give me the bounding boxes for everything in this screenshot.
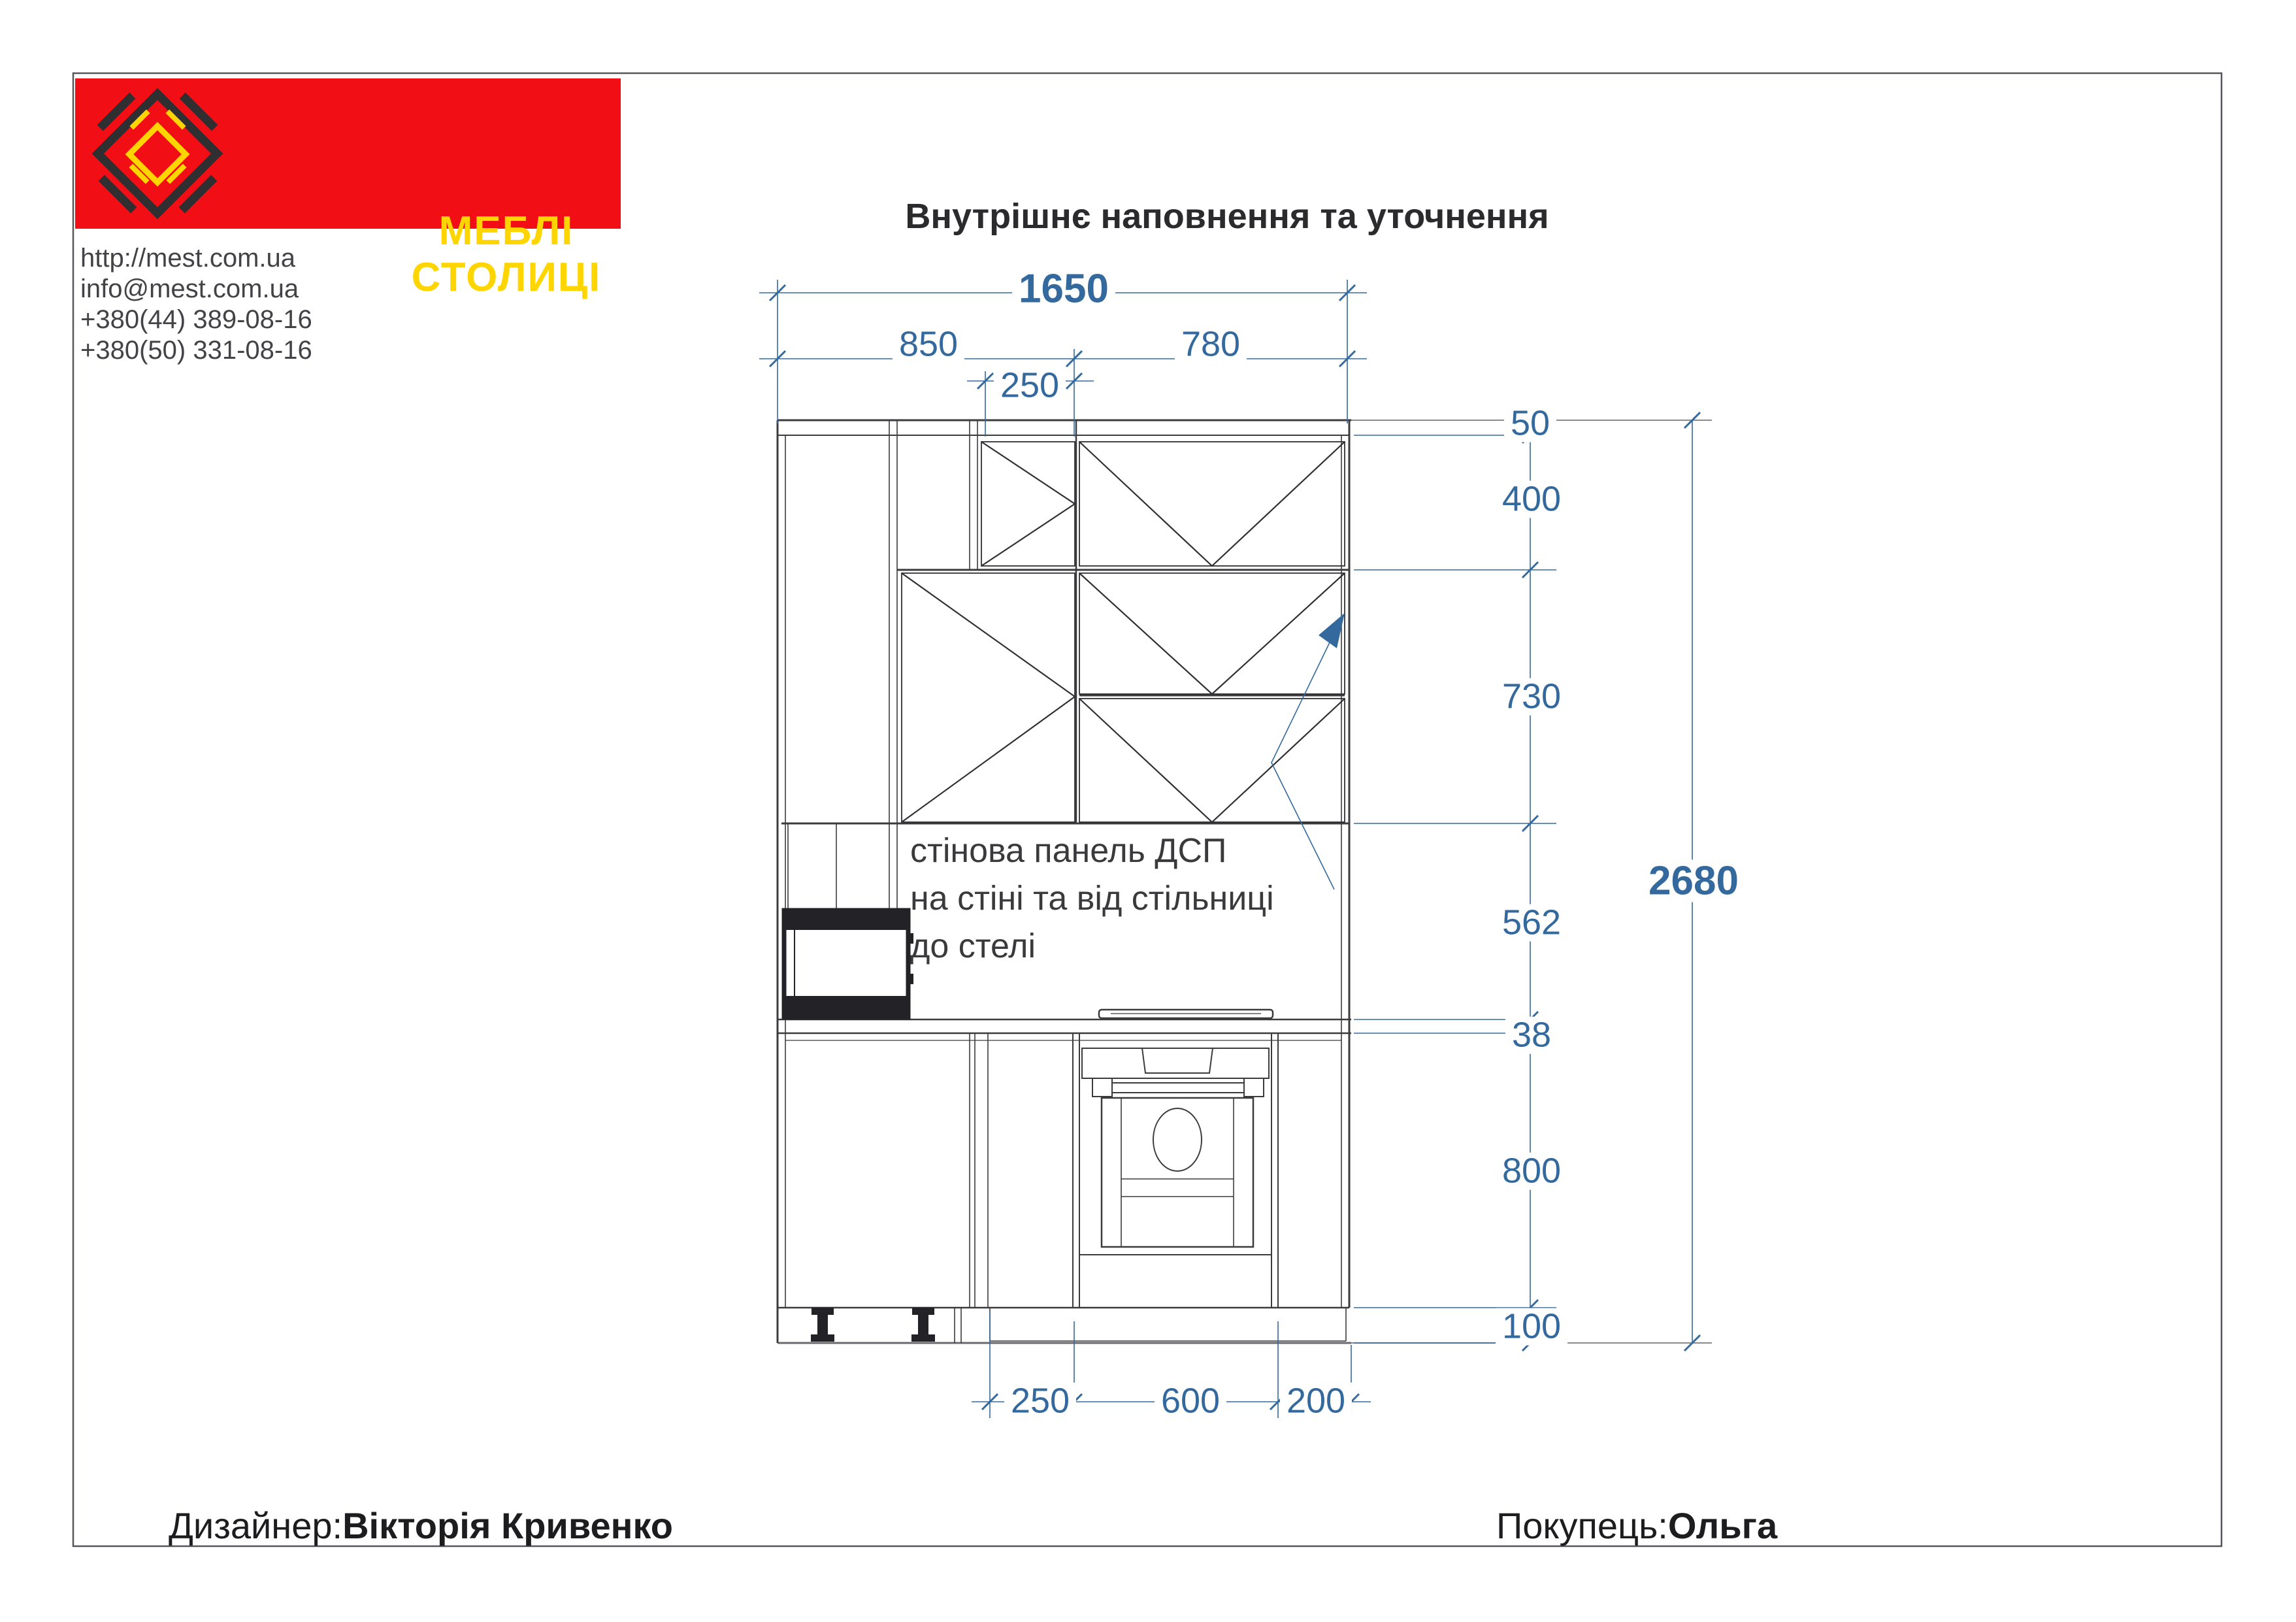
dim-top-filler: 50 — [1504, 405, 1556, 442]
door-fronts — [902, 442, 1345, 822]
designer-name: Вікторія Кривенко — [342, 1505, 673, 1546]
oven — [1079, 1048, 1271, 1255]
microwave — [784, 910, 913, 1018]
annotation-line-1: стінова панель ДСП — [910, 827, 1274, 875]
dim-left-width: 850 — [893, 326, 964, 363]
dim-countertop: 38 — [1505, 1017, 1558, 1054]
annotation-leader-line — [1271, 620, 1341, 889]
page-title: Внутрішнє наповнення та уточнення — [868, 196, 1586, 237]
dim-bottom-oven: 600 — [1155, 1383, 1226, 1420]
contact-block: http://mest.com.ua info@mest.com.ua +380… — [80, 243, 312, 366]
dim-bottom-end: 200 — [1280, 1383, 1352, 1420]
drawing-sheet: МЕБЛІ СТОЛИЦІ http://mest.com.ua info@me… — [0, 0, 2296, 1622]
cabinet-legs — [811, 1308, 935, 1342]
customer-field: Покупець:Ольга — [1496, 1504, 1777, 1547]
wall-panel-annotation: стінова панель ДСП на стіні та від стіль… — [910, 827, 1274, 970]
dim-base-height: 800 — [1496, 1153, 1567, 1190]
leader-arrow-icon — [1319, 613, 1345, 648]
cooktop — [1099, 1010, 1273, 1018]
dim-right-width: 780 — [1175, 326, 1247, 363]
website-link[interactable]: http://mest.com.ua — [80, 243, 312, 274]
cabinet-drawing — [0, 0, 2296, 1622]
phone-number-2: +380(50) 331-08-16 — [80, 335, 312, 366]
phone-number-1: +380(44) 389-08-16 — [80, 305, 312, 335]
dim-plinth: 100 — [1496, 1308, 1567, 1346]
annotation-line-2: на стіні та від стільниці — [910, 875, 1274, 923]
customer-name: Ольга — [1668, 1505, 1777, 1546]
designer-field: Дизайнер:Вікторія Кривенко — [169, 1504, 673, 1547]
customer-label: Покупець: — [1496, 1505, 1668, 1546]
dim-total-width: 1650 — [1012, 267, 1115, 310]
email-link[interactable]: info@mest.com.ua — [80, 274, 312, 305]
dim-lower-row: 730 — [1496, 678, 1567, 716]
brand-name: МЕБЛІ СТОЛИЦІ — [346, 208, 666, 301]
annotation-line-3: до стелі — [910, 923, 1274, 970]
dim-total-height: 2680 — [1642, 859, 1745, 902]
dim-bottom-cabinet: 250 — [1004, 1383, 1076, 1420]
dim-wall-panel: 562 — [1496, 904, 1567, 942]
dim-upper-row: 400 — [1496, 481, 1567, 518]
dim-inner-width: 250 — [994, 367, 1066, 405]
designer-label: Дизайнер: — [169, 1505, 342, 1546]
